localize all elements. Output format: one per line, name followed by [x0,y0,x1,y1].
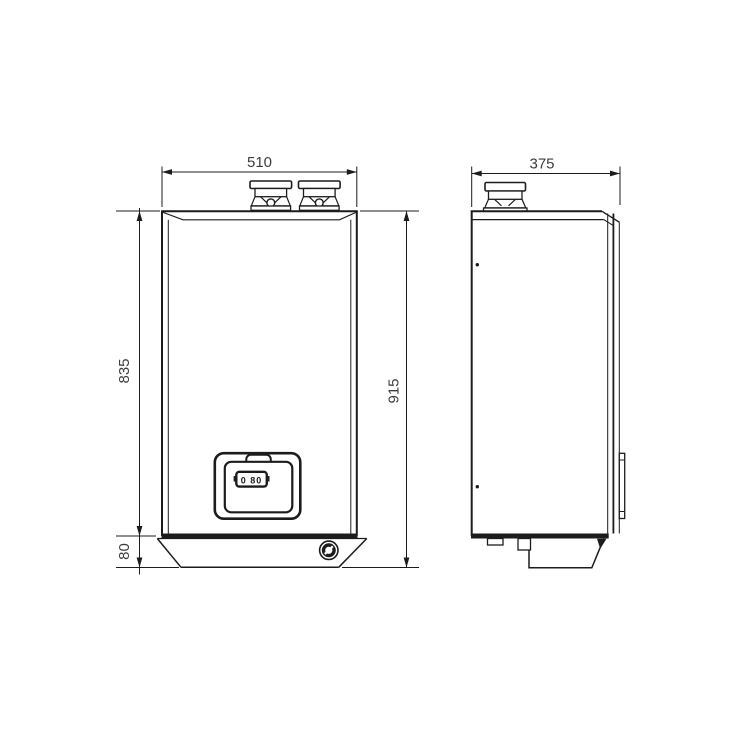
dim-width-label: 510 [247,154,272,171]
side-screw-bottom-icon [476,485,479,488]
dim-total-height: 915 [342,211,419,568]
dim-total-height-label: 915 [386,378,403,403]
side-drain-wedge [597,539,607,549]
side-bottom-bar [471,534,609,539]
side-casing [471,211,625,538]
side-pipe-stub-2 [518,539,531,551]
dimensions: 510 375 835 80 915 [116,154,620,575]
front-control-panel: 0 80 [215,453,300,519]
side-base-skirt [488,539,607,568]
dim-body-height: 835 80 [116,208,179,575]
dim-depth-label: 375 [529,156,554,173]
side-pipe-stub-1 [488,539,504,546]
front-base-skirt [157,539,366,568]
dim-body-height-label: 835 [116,358,133,383]
dim-base-height-label: 80 [116,543,133,560]
front-valve-knob-icon [320,541,338,559]
front-flue-terminal-right-icon [299,181,341,210]
front-flue-terminal-left-icon [250,181,292,210]
side-control-panel-bulge [619,453,624,518]
side-view [471,183,625,568]
front-bottom-bar [162,534,358,539]
panel-display-value: 0 80 [241,476,263,486]
side-screw-top-icon [476,263,479,266]
side-flue-terminal-icon [484,183,528,212]
front-view: 0 80 [157,181,366,567]
boiler-dimension-drawing: 0 80 [0,0,750,750]
